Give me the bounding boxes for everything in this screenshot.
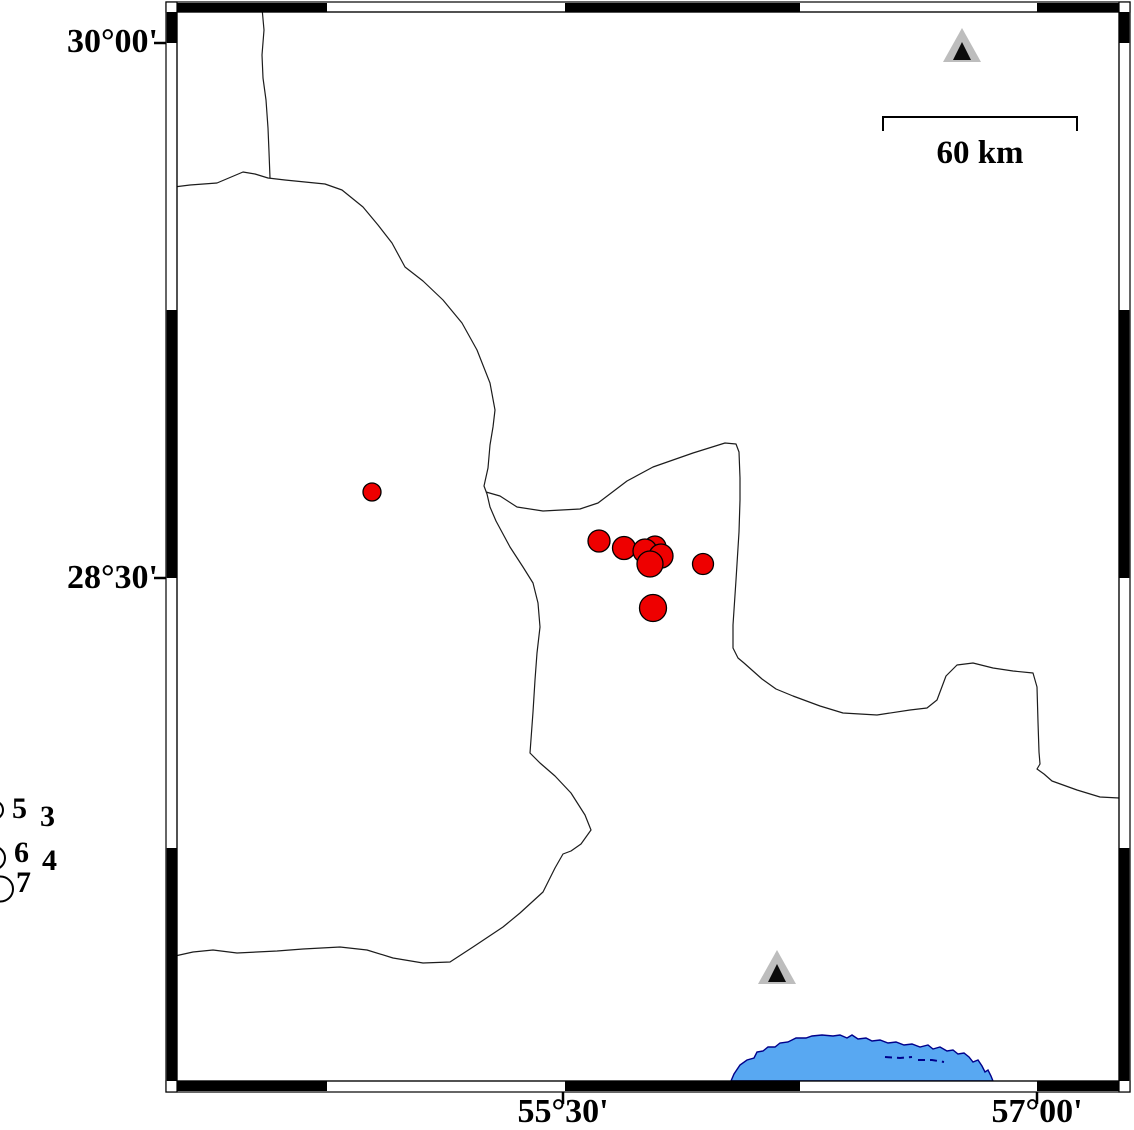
boundary-line	[262, 8, 270, 178]
frame-segment-black	[1120, 12, 1130, 43]
axis-label-lat-30: 30°00'	[40, 24, 158, 60]
legend-magnitude-circle	[0, 847, 5, 870]
frame-segment-black	[1037, 3, 1119, 12]
frame-segment-black	[167, 310, 177, 578]
frame-segment-black	[177, 3, 327, 12]
frame-segment-black	[167, 12, 177, 43]
axis-label-lon-5700: 57°00'	[962, 1094, 1112, 1130]
legend-magnitude-circle	[0, 801, 3, 819]
epicenter-circle	[637, 551, 663, 577]
epicenter-circle	[613, 537, 636, 560]
seismicity-map-figure: 30°00' 28°30' 55°30' 57°00' 60 km 5 3 6 …	[0, 0, 1134, 1130]
frame-segment-black	[565, 1082, 800, 1092]
legend-label-mag-7: 7	[16, 868, 31, 898]
frame-segment-black	[167, 848, 177, 1081]
epicenter-circle	[588, 530, 610, 552]
boundary-line	[486, 443, 1119, 798]
epicenter-circle	[693, 554, 714, 575]
scale-bar	[883, 117, 1077, 131]
legend-label-mag-6: 6	[14, 838, 29, 868]
axis-label-lat-2830: 28°30'	[40, 560, 158, 596]
legend-magnitude-circle	[0, 877, 13, 902]
legend-label-mag-4: 4	[42, 846, 57, 876]
frame-segment-black	[177, 1082, 327, 1092]
legend-label-mag-5: 5	[12, 794, 27, 824]
boundary-line	[166, 172, 591, 963]
frame-segment-black	[1037, 1082, 1119, 1092]
frame-segment-black	[565, 3, 800, 12]
frame-segment-black	[1120, 848, 1130, 1081]
scale-bar-label: 60 km	[905, 136, 1055, 170]
epicenter-circle	[363, 483, 381, 501]
legend-label-mag-3: 3	[40, 802, 55, 832]
frame-segment-black	[1120, 310, 1130, 578]
water-body	[731, 1035, 993, 1081]
epicenter-circle	[640, 595, 667, 622]
axis-label-lon-5530: 55°30'	[488, 1094, 638, 1130]
